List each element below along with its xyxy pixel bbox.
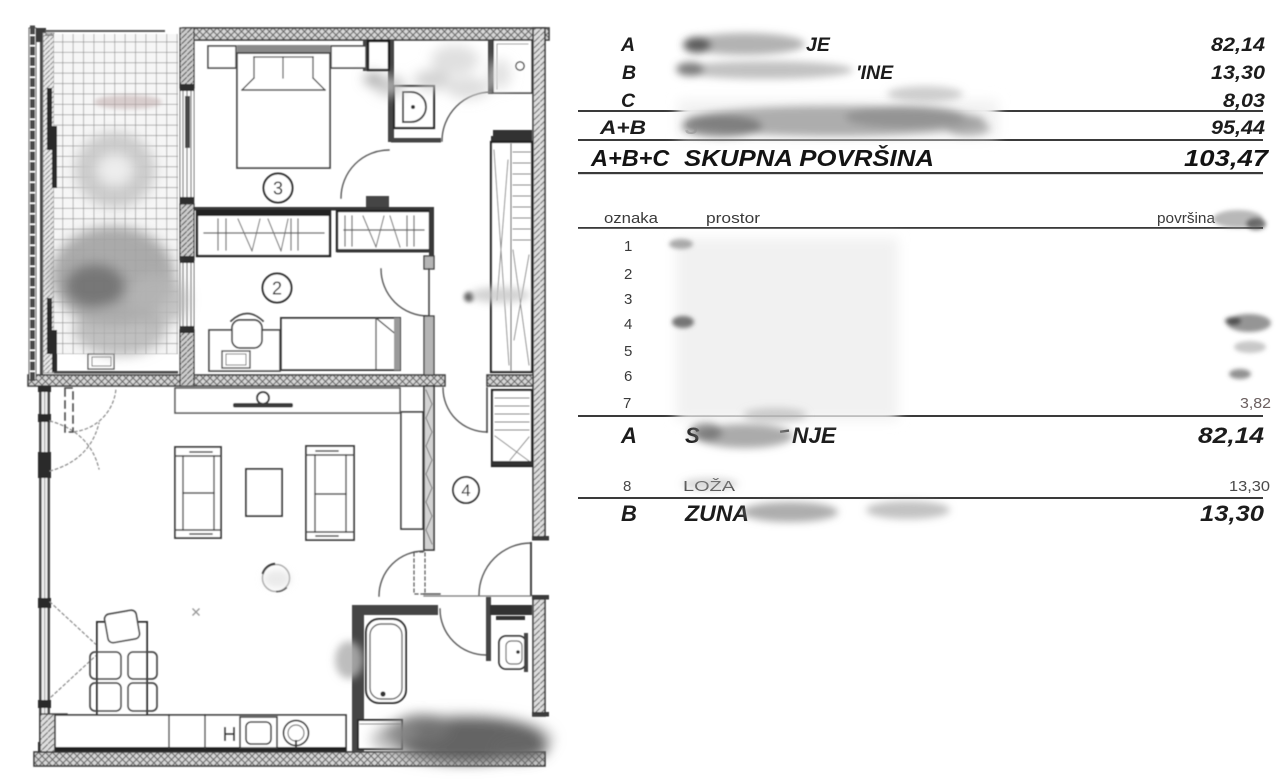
svg-text:5: 5: [624, 343, 632, 360]
svg-text:4: 4: [461, 481, 470, 500]
svg-text:82,14: 82,14: [1211, 34, 1265, 56]
svg-text:2: 2: [624, 266, 632, 283]
svg-text:13,30: 13,30: [1200, 501, 1265, 526]
svg-text:NJE: NJE: [792, 423, 837, 448]
svg-text:2: 2: [272, 279, 282, 299]
svg-text:B: B: [621, 501, 637, 526]
svg-text:82,14: 82,14: [1198, 423, 1264, 448]
svg-text:C: C: [621, 90, 636, 112]
svg-text:95,44: 95,44: [1211, 117, 1265, 139]
svg-text:JE: JE: [806, 34, 831, 56]
svg-text:1: 1: [624, 238, 632, 255]
svg-text:A: A: [620, 423, 637, 448]
svg-text:4: 4: [624, 316, 632, 333]
svg-text:8,03: 8,03: [1223, 90, 1265, 112]
svg-text:13,30: 13,30: [1211, 62, 1265, 84]
svg-text:7: 7: [623, 395, 631, 412]
svg-text:B: B: [622, 62, 636, 84]
svg-text:6: 6: [624, 368, 632, 385]
svg-text:SKUPNA POVRŠINA: SKUPNA POVRŠINA: [684, 144, 934, 171]
svg-text:A+B+C: A+B+C: [590, 145, 670, 171]
svg-text:oznaka: oznaka: [604, 210, 659, 227]
svg-text:'INE: 'INE: [856, 62, 894, 84]
svg-text:13,30: 13,30: [1229, 478, 1270, 495]
svg-text:A+B: A+B: [599, 117, 646, 139]
svg-text:prostor: prostor: [706, 210, 760, 227]
svg-text:103,47: 103,47: [1184, 145, 1269, 171]
svg-text:3,82: 3,82: [1240, 395, 1271, 412]
svg-text:ZUNA: ZUNA: [684, 501, 749, 526]
svg-text:8: 8: [623, 478, 631, 495]
svg-text:A: A: [620, 34, 635, 56]
svg-text:3: 3: [624, 291, 632, 308]
svg-text:površina: površina: [1157, 210, 1216, 227]
svg-text:3: 3: [273, 179, 283, 199]
